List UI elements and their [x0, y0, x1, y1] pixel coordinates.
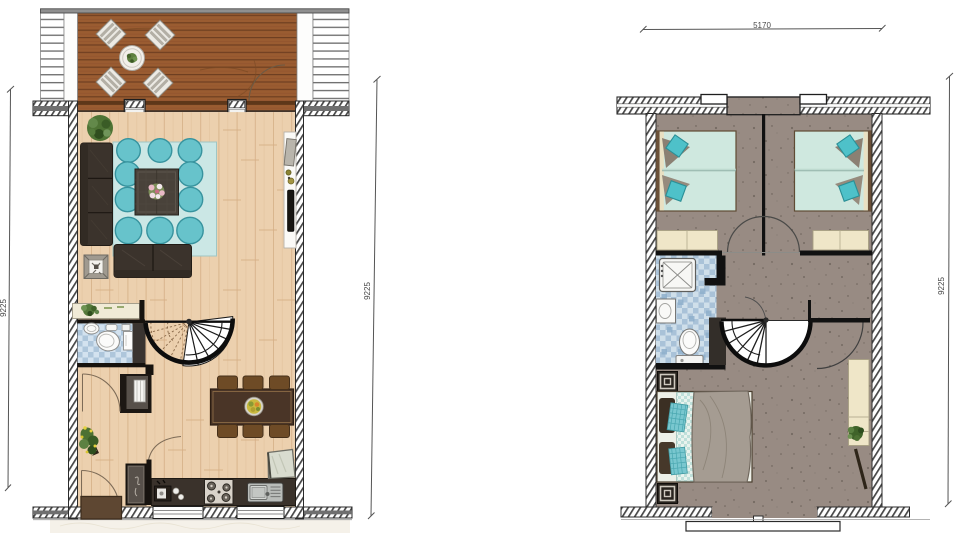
svg-text:9225: 9225 [363, 282, 372, 300]
svg-text:9225: 9225 [937, 277, 946, 295]
svg-text:5170: 5170 [753, 21, 771, 30]
svg-text:9225: 9225 [0, 299, 8, 317]
